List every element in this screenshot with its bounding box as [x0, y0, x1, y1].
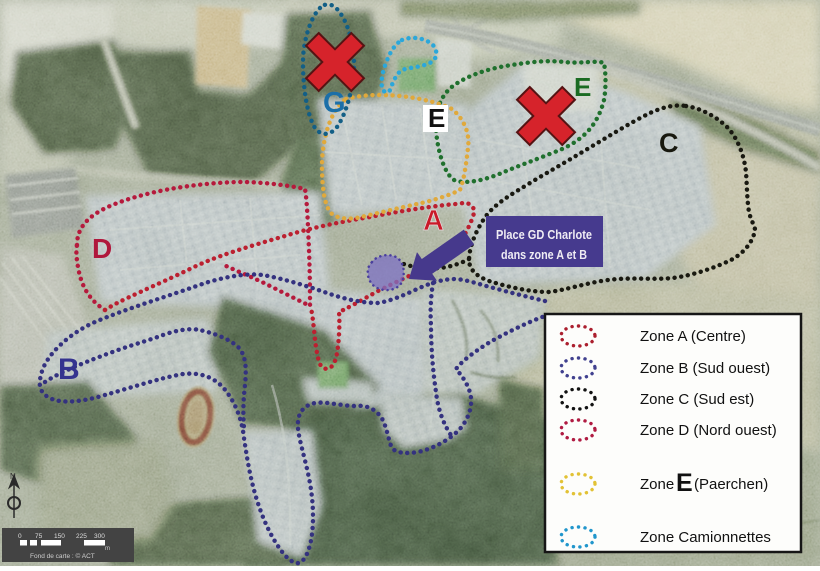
svg-text:Zone Camionnettes: Zone Camionnettes: [640, 529, 771, 546]
svg-text:0: 0: [18, 533, 22, 540]
svg-text:Zone D (Nord ouest): Zone D (Nord ouest): [640, 422, 777, 439]
svg-text:N: N: [10, 472, 16, 481]
svg-text:A: A: [423, 205, 444, 237]
svg-text:225: 225: [76, 533, 87, 540]
svg-text:Zone A (Centre): Zone A (Centre): [640, 328, 746, 345]
svg-text:D: D: [92, 233, 112, 264]
svg-text:75: 75: [35, 533, 43, 540]
svg-text:Zone B (Sud ouest): Zone B (Sud ouest): [640, 360, 770, 377]
svg-text:300: 300: [94, 533, 105, 540]
svg-text:E: E: [574, 72, 591, 102]
svg-text:Zone C (Sud est): Zone C (Sud est): [640, 391, 754, 408]
svg-text:C: C: [659, 128, 679, 158]
svg-text:B: B: [58, 353, 80, 386]
svg-text:Fond de carte : © ACT: Fond de carte : © ACT: [30, 552, 95, 560]
svg-text:G: G: [323, 87, 346, 119]
svg-text:E: E: [428, 103, 445, 133]
svg-text:m: m: [105, 546, 110, 552]
svg-text:(Paerchen): (Paerchen): [694, 476, 768, 493]
svg-text:E: E: [676, 469, 693, 497]
svg-text:150: 150: [54, 533, 65, 540]
svg-text:Zone: Zone: [640, 476, 674, 493]
svg-text:Place GD Charlote: Place GD Charlote: [496, 227, 592, 242]
svg-text:dans zone A et B: dans zone A et B: [501, 247, 587, 262]
